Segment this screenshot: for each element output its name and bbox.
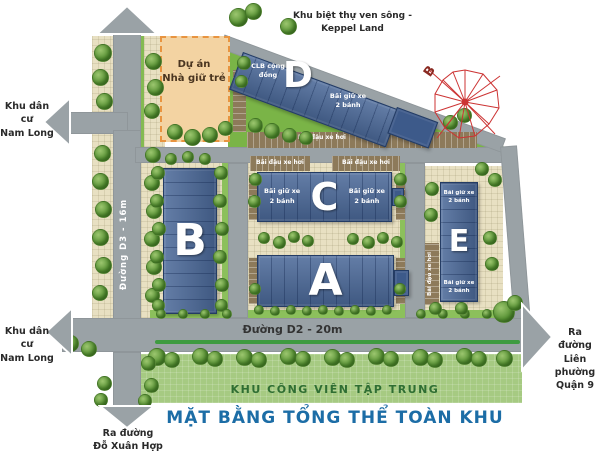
tree-icon [97,376,112,391]
tree-icon [248,195,261,208]
tree-icon [182,151,194,163]
tree-icon [207,351,223,367]
tree-icon [156,309,166,319]
tree-icon [164,352,180,368]
tree-icon [362,236,375,249]
tree-icon [81,341,97,357]
tree-icon [282,128,297,143]
tree-icon [96,93,113,110]
tree-icon [150,194,164,208]
tree-icon [141,356,156,371]
keppel-land-label: Khu biệt thự ven sông -Keppel Land [290,10,415,35]
tree-icon [383,351,399,367]
tree-icon [249,283,261,295]
tree-icon [456,348,473,365]
compass-north-label: B [421,63,439,80]
tree-icon [394,283,406,295]
tree-icon [264,123,280,139]
tree-icon [258,232,270,244]
tree-icon [416,309,426,319]
tree-icon [249,173,262,186]
tree-icon [94,145,111,162]
tree-icon [248,118,263,133]
tree-icon [412,349,429,366]
tree-icon [350,305,360,315]
tree-icon [200,309,210,319]
kindergarten-label: Dự án Nhà giữ trẻ [161,58,227,86]
tree-icon [199,153,211,165]
tree-icon [218,121,233,136]
tree-icon [270,306,280,316]
tree-icon [455,302,468,315]
compass-rose-icon: B [415,50,507,146]
north-exit-arrow-icon [95,4,159,36]
tree-icon [485,257,499,271]
tree-icon [391,236,403,248]
nam-long-label-bottom: Khu dân cưNam Long [0,325,54,365]
tree-icon [245,3,262,20]
car-parking-c-left-label: Bãi đậu xe hơi [250,160,310,166]
road-south-exit [113,352,141,408]
east-exit-arrow-icon [520,302,554,372]
tree-icon [482,309,492,319]
road-d2-label: Đường D2 - 20m [230,322,355,337]
road-d3-label: Đường D3 - 16m [119,198,129,290]
tree-icon [368,348,385,365]
tree-icon [92,285,108,301]
road-d2-median [155,340,520,344]
tree-icon [394,195,407,208]
page-title: MẶT BẰNG TỔNG THỂ TOÀN KHU [145,408,525,428]
tree-icon [237,56,251,70]
tree-icon [295,351,311,367]
tree-icon [213,250,227,264]
tree-icon [167,124,183,140]
tree-icon [334,306,344,316]
road-between-b-c [228,163,248,318]
tree-icon [213,194,227,208]
tree-icon [483,231,497,245]
building-e: Bãi giữ xe2 bánh E Bãi giữ xe2 bánh [440,182,478,302]
tree-icon [273,236,286,249]
tree-icon [95,201,112,218]
tree-icon [144,103,160,119]
moto-parking-c-right-label: Bãi giữ xe2 bánh [349,187,385,207]
tree-icon [192,348,209,365]
tree-icon [94,44,112,62]
tree-icon [424,208,438,222]
park-label: KHU CÔNG VIÊN TẬP TRUNG [225,382,445,397]
building-b-label: B [173,219,207,263]
building-c-label: C [311,178,339,216]
tree-icon [92,173,109,190]
tree-icon [471,351,487,367]
tree-icon [324,349,341,366]
tree-icon [152,278,166,292]
tree-icon [299,131,313,145]
tree-icon [288,231,300,243]
tree-icon [377,232,389,244]
tree-icon [202,127,218,143]
car-parking-e-label: Bãi đậu xe hơi [427,246,433,302]
tree-icon [251,352,267,368]
tree-icon [152,222,166,236]
nam-long-label-top: Khu dân cưNam Long [0,100,54,140]
tree-icon [92,69,109,86]
tree-icon [254,305,264,315]
tree-icon [280,348,297,365]
tree-icon [222,309,232,319]
tree-icon [235,75,248,88]
tree-icon [339,352,355,368]
tree-icon [215,278,229,292]
building-a: A [257,255,394,307]
tree-icon [488,173,502,187]
tree-icon [236,349,253,366]
tree-icon [95,257,112,274]
tree-icon [214,166,228,180]
moto-parking-e-bottom-label: Bãi giữ xe2 bánh [444,279,475,296]
tree-icon [394,173,407,186]
clb-label: CLB cộngđồng [246,62,290,80]
moto-parking-d-label: Bãi giữ xe2 bánh [324,92,372,110]
tree-icon [425,182,439,196]
tree-icon [318,305,328,315]
tree-icon [286,305,296,315]
site-plan: Dự án Nhà giữ trẻ D CLB cộngđồng Bãi giữ… [0,0,600,453]
tree-icon [147,79,164,96]
moto-parking-e-top-label: Bãi giữ xe2 bánh [444,189,475,206]
moto-parking-c-left-label: Bãi giữ xe2 bánh [264,187,300,207]
tree-icon [165,153,177,165]
tree-icon [429,302,442,315]
building-c: Bãi giữ xe2 bánh C Bãi giữ xe2 bánh [257,172,392,222]
car-parking-c-right-label: Bãi đậu xe hơi [332,160,400,166]
tree-icon [145,147,161,163]
tree-icon [366,306,376,316]
tree-icon [184,129,201,146]
tree-icon [145,53,162,70]
tree-icon [215,222,229,236]
tree-icon [427,352,443,368]
tree-icon [347,233,359,245]
tree-icon [302,306,312,316]
tree-icon [496,350,513,367]
building-e-label: E [449,227,470,257]
tree-icon [151,166,165,180]
lien-phuong-exit-label: Ra đườngLiên phườngQuận 9 [550,326,600,392]
building-a-label: A [308,259,342,303]
tree-icon [178,309,188,319]
tree-icon [150,250,164,264]
tree-icon [144,378,159,393]
tree-icon [302,235,314,247]
tree-icon [475,162,489,176]
tree-icon [382,305,392,315]
tree-icon [92,229,109,246]
building-b: B [163,168,217,314]
do-xuan-hop-exit-label: Ra đườngĐỗ Xuân Hợp [90,427,166,453]
